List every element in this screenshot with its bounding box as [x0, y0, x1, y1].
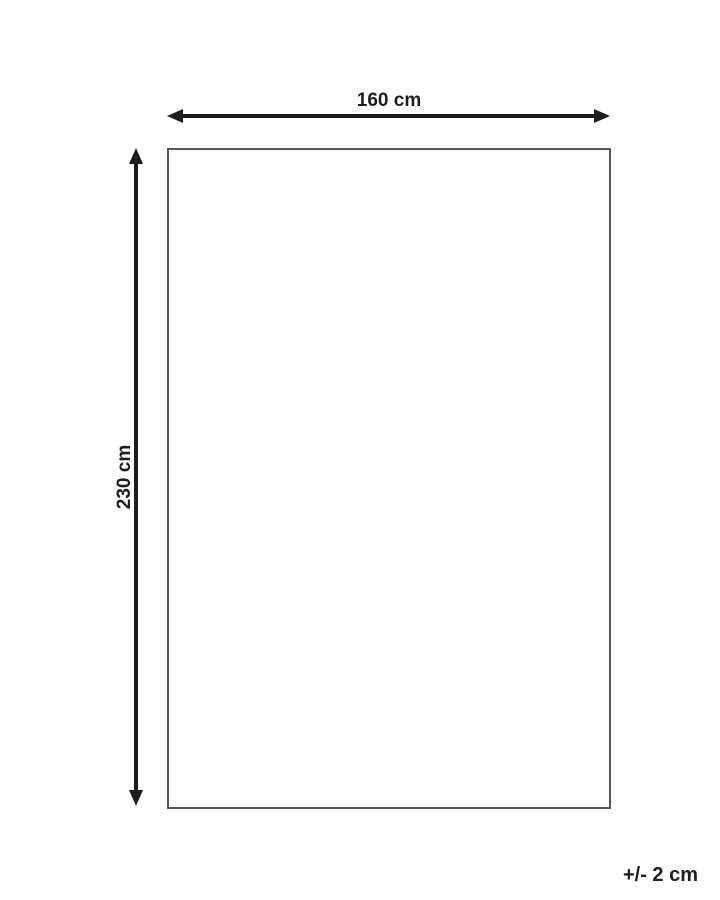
height-label: 230 cm: [114, 445, 136, 509]
width-arrow-shaft: [178, 114, 599, 118]
width-label: 160 cm: [357, 90, 421, 112]
arrowhead-down-icon: [129, 790, 143, 806]
tolerance-label: +/- 2 cm: [623, 864, 698, 887]
dimension-diagram: 160 cm 230 cm +/- 2 cm: [0, 0, 720, 900]
product-outline: [167, 148, 611, 809]
arrowhead-right-icon: [594, 109, 610, 123]
